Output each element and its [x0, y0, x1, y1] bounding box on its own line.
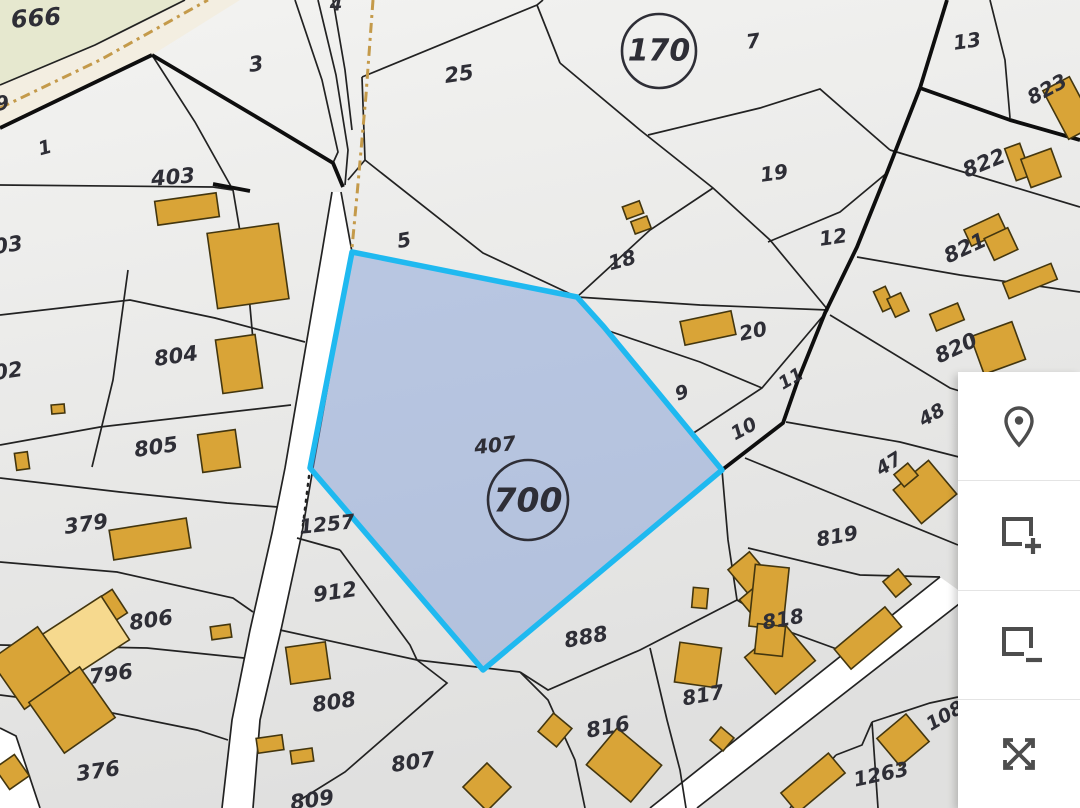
expand-icon: [996, 731, 1042, 777]
map-pin-icon: [996, 403, 1042, 449]
parcel-number-label: 03: [0, 231, 24, 259]
building: [51, 404, 65, 414]
rectangle-minus-icon: [996, 622, 1042, 668]
parcel-number-label: 4: [329, 0, 343, 16]
building: [692, 587, 709, 608]
selected-parcel-number: 407: [472, 431, 517, 459]
building: [256, 735, 284, 753]
building: [14, 452, 29, 471]
map-viewport: 6664932571382314038221912821035188042002…: [0, 0, 1080, 808]
building: [198, 430, 241, 473]
building: [207, 223, 289, 308]
remove-selection-button[interactable]: [958, 590, 1080, 699]
parcel-number-label: 19: [759, 159, 790, 187]
building: [210, 624, 232, 640]
parcel-number-label: 25: [443, 60, 475, 88]
building: [290, 748, 314, 764]
parcel-number-label: 403: [149, 163, 196, 191]
locate-button[interactable]: [958, 372, 1080, 480]
parcel-number-label: 12: [818, 223, 849, 251]
rectangle-plus-icon: [996, 512, 1042, 558]
parcel-number-label: 02: [0, 357, 24, 385]
building: [215, 334, 262, 393]
building: [286, 642, 331, 684]
fullscreen-button[interactable]: [958, 699, 1080, 808]
add-selection-button[interactable]: [958, 480, 1080, 589]
parcel-number-label: 13: [952, 27, 983, 55]
map-toolbar: [958, 372, 1080, 808]
cadastral-map[interactable]: 6664932571382314038221912821035188042002…: [0, 0, 1080, 808]
selected-parcel-circle-label: 700: [494, 481, 563, 520]
parcel-number-label: 666: [10, 2, 62, 33]
block-number-label: 170: [628, 34, 691, 69]
